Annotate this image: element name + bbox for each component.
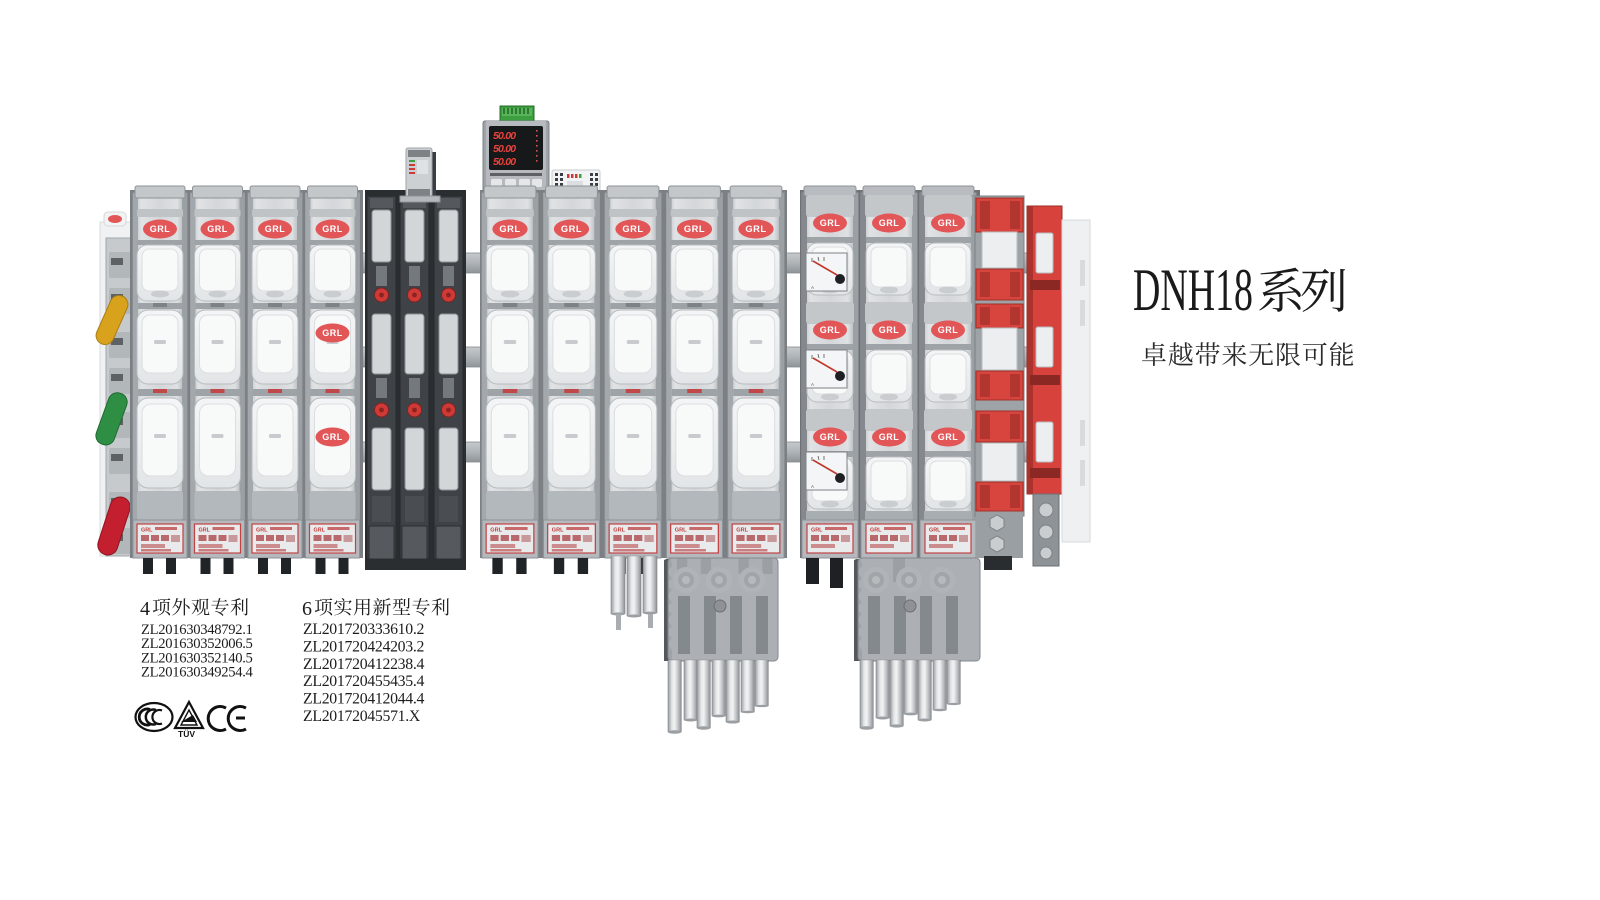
svg-text:50.00: 50.00 [493, 130, 516, 142]
svg-text:6: 6 [302, 598, 312, 620]
svg-text:ZL201720424203.2: ZL201720424203.2 [303, 638, 425, 655]
svg-text:ZL201630349254.4: ZL201630349254.4 [141, 665, 254, 681]
svg-text:ZL201720455435.4: ZL201720455435.4 [303, 673, 425, 690]
svg-text:DNH18: DNH18 [1133, 257, 1253, 323]
svg-text:ZL20172045571.X: ZL20172045571.X [303, 708, 421, 725]
svg-text:50.00: 50.00 [493, 143, 516, 155]
svg-text:A: A [811, 285, 814, 290]
svg-text:50.00: 50.00 [493, 156, 516, 168]
svg-text:A: A [811, 382, 814, 387]
svg-text:A: A [811, 484, 814, 489]
svg-text:4: 4 [140, 598, 150, 620]
svg-text:ZL201720333610.2: ZL201720333610.2 [303, 621, 425, 638]
svg-text:ZL201720412044.4: ZL201720412044.4 [303, 691, 425, 708]
svg-text:ZL201720412238.4: ZL201720412238.4 [303, 656, 425, 673]
svg-text:TÜV: TÜV [178, 729, 195, 739]
